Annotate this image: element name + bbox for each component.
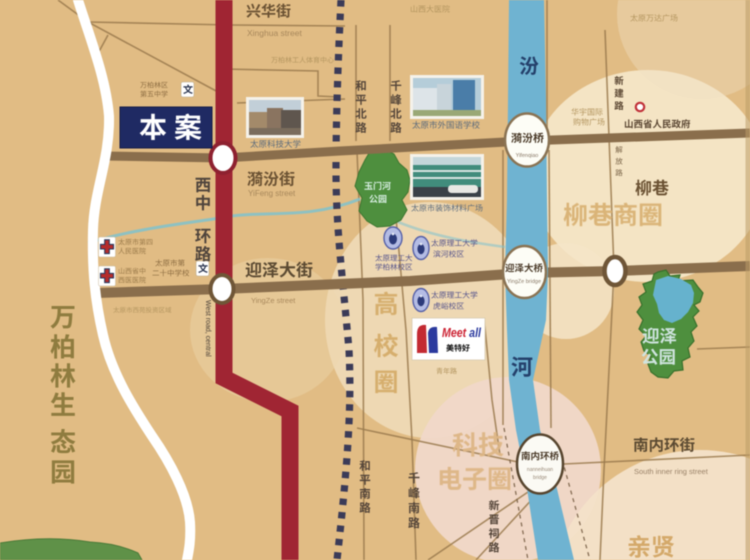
- svg-text:YingZe street: YingZe street: [251, 296, 296, 305]
- svg-text:YiFeng street: YiFeng street: [248, 189, 296, 198]
- svg-text:YingZe bridge: YingZe bridge: [507, 279, 541, 285]
- svg-text:Yifenqiao: Yifenqiao: [516, 153, 539, 159]
- svg-text:Meet all: Meet all: [442, 325, 481, 340]
- svg-text:West road, central: West road, central: [204, 300, 211, 357]
- svg-text:Xinghua street: Xinghua street: [247, 28, 302, 38]
- svg-text:nanneihuan: nanneihuan: [527, 467, 553, 473]
- svg-text:South inner ring street: South inner ring street: [634, 467, 709, 476]
- svg-text:bridge: bridge: [533, 475, 547, 481]
